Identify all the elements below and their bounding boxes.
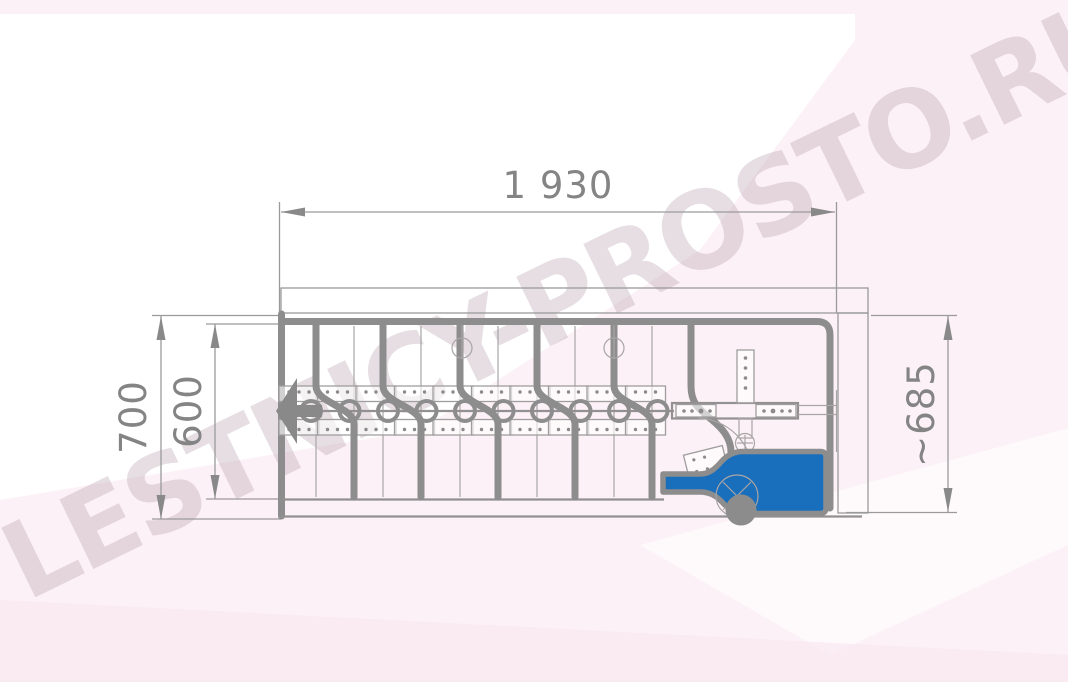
- last-stringer-into-handle: [691, 325, 731, 452]
- pivot-knob: [726, 495, 757, 526]
- wall-hatch: [838, 313, 868, 513]
- dimension-height-inner-label: 600: [167, 374, 210, 448]
- dimension-height-right-label: ~685: [900, 361, 943, 467]
- dimension-height-right: ~685: [846, 316, 957, 513]
- dimension-height-inner: 600: [167, 324, 278, 499]
- technical-drawing: 1 930 700 600 ~685: [0, 0, 1068, 682]
- dimension-width-top-label: 1 930: [503, 164, 614, 207]
- dimension-height-outer-label: 700: [112, 380, 155, 454]
- latch-bracket: [737, 350, 754, 438]
- ladder-sections: [279, 325, 731, 497]
- drawing-canvas: LESTNICY-PROSTO.RU 1 930: [0, 0, 1068, 682]
- dimension-width-top: 1 930: [280, 164, 837, 313]
- ceiling-hatch: [281, 288, 868, 313]
- tread-plates-bottom: [279, 420, 666, 436]
